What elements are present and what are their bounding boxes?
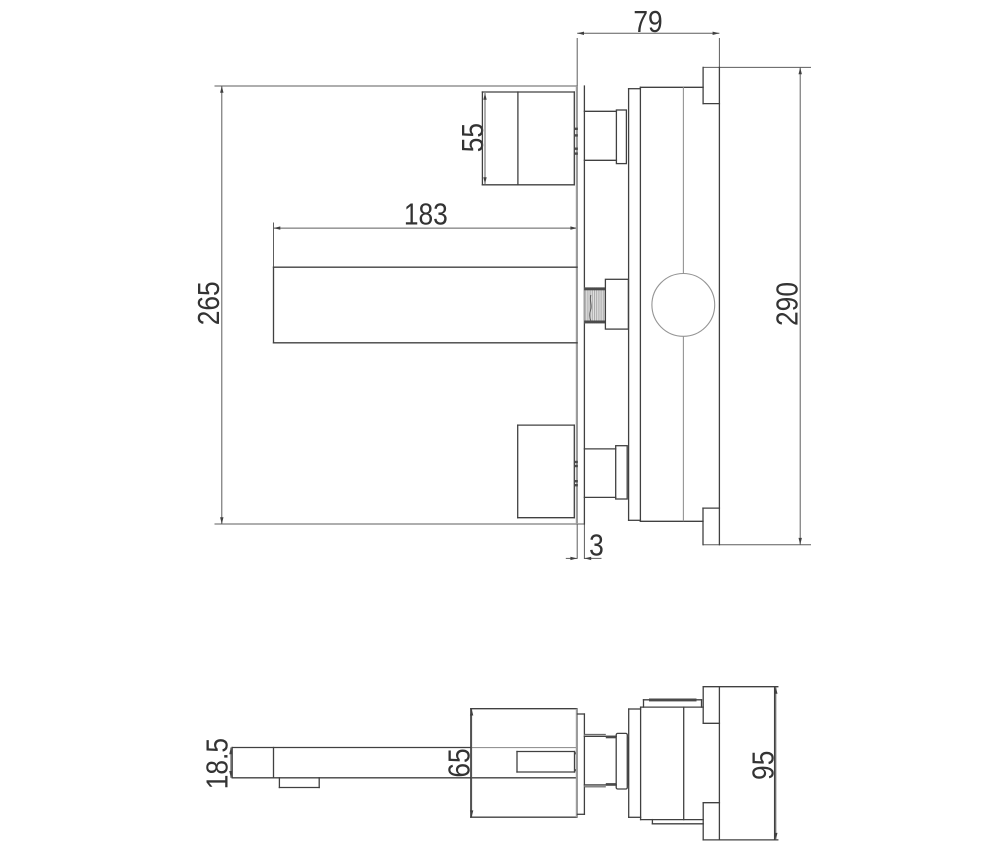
svg-text:18.5: 18.5 xyxy=(200,738,234,789)
svg-text:95: 95 xyxy=(746,751,780,780)
svg-text:55: 55 xyxy=(456,123,490,152)
svg-text:65: 65 xyxy=(442,748,476,777)
svg-text:3: 3 xyxy=(589,529,604,563)
svg-text:79: 79 xyxy=(633,5,662,39)
svg-text:265: 265 xyxy=(192,281,226,325)
svg-text:290: 290 xyxy=(770,282,804,326)
svg-text:183: 183 xyxy=(404,198,448,232)
